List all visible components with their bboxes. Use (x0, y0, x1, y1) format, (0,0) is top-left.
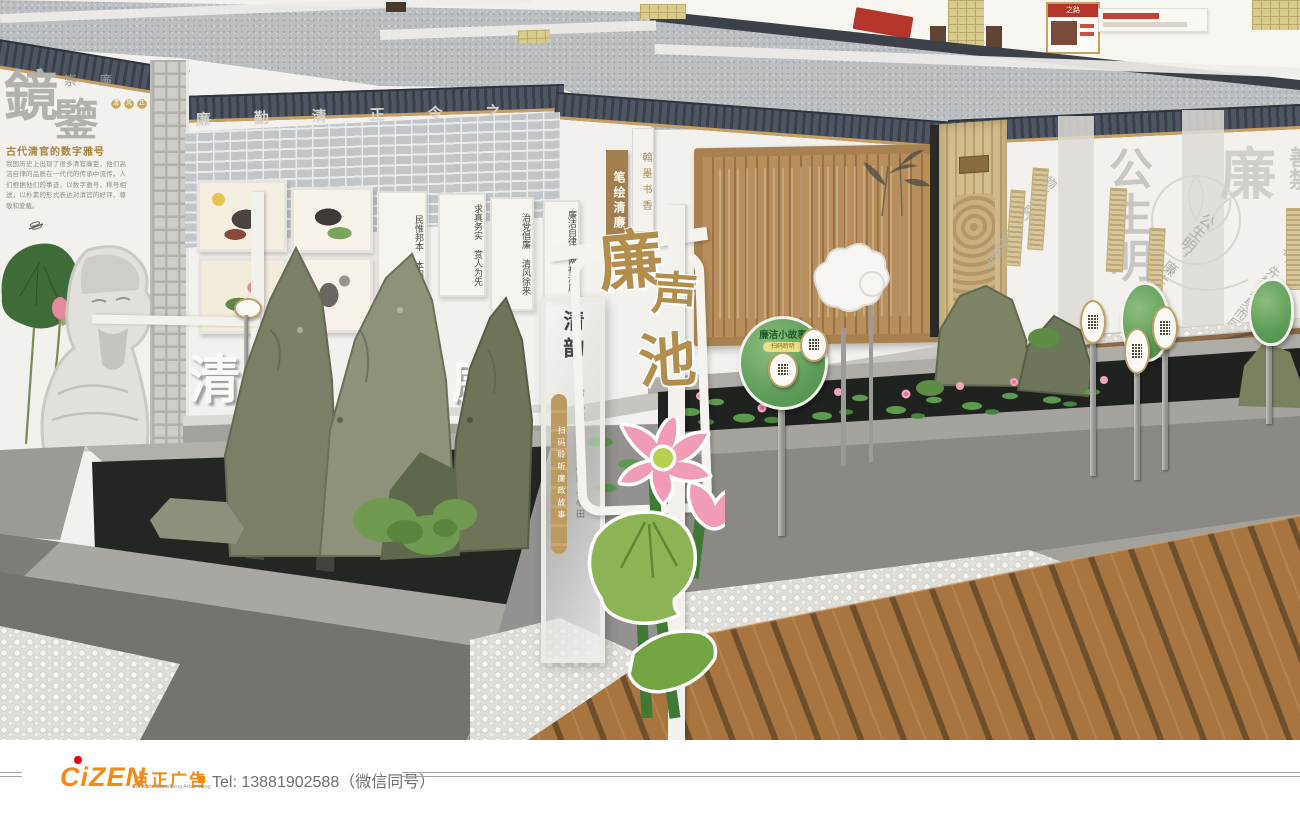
footer-rule-left (0, 772, 22, 777)
footer-rule-right (402, 772, 1300, 777)
qr-medallion (1124, 328, 1150, 374)
qr-medallion (1152, 306, 1178, 350)
footer-bullet (198, 776, 205, 783)
glass-medallion-column: 扫码聆听廉政故事 (551, 394, 567, 554)
qr-code (1087, 314, 1098, 329)
leaf-sign-far-right (1246, 278, 1296, 428)
leaf-sign-cluster-right (1076, 280, 1196, 480)
logo-english: Chengdu Dianzheng Advertising (132, 784, 211, 790)
qr-code (808, 338, 819, 351)
leaf-sign-pill: 扫码聆听 (763, 342, 803, 352)
sign-pole (1134, 360, 1140, 480)
qr-medallion (800, 328, 828, 362)
qr-code (1159, 320, 1170, 335)
sign-pole (1162, 338, 1168, 470)
qr-medallion (768, 352, 798, 388)
lotus-leaf-sign (1248, 278, 1294, 346)
sign-pole (1090, 336, 1096, 476)
qr-code (1131, 343, 1142, 358)
exhibition-hall-rendering: 之路 鏡 鑒 崇 廉 清风正气 古代清官的数字雅号 我国历史上出现了很多清官廉吏… (0, 0, 1300, 740)
arch-char-chi: 池 (636, 313, 698, 400)
logo-dot (74, 756, 82, 764)
page: 之路 鏡 鑒 崇 廉 清风正气 古代清官的数字雅号 我国历史上出现了很多清官廉吏… (0, 0, 1300, 813)
sign-pole (778, 400, 785, 536)
qr-code (777, 363, 788, 376)
leaf-sign-group: 廉洁小故事 扫码聆听 (738, 316, 834, 536)
qr-medallion (1080, 300, 1106, 344)
footer: CiZEN 点正广告 Chengdu Dianzheng Advertising… (0, 740, 1300, 813)
lotus-cutout-decoration (575, 418, 725, 730)
